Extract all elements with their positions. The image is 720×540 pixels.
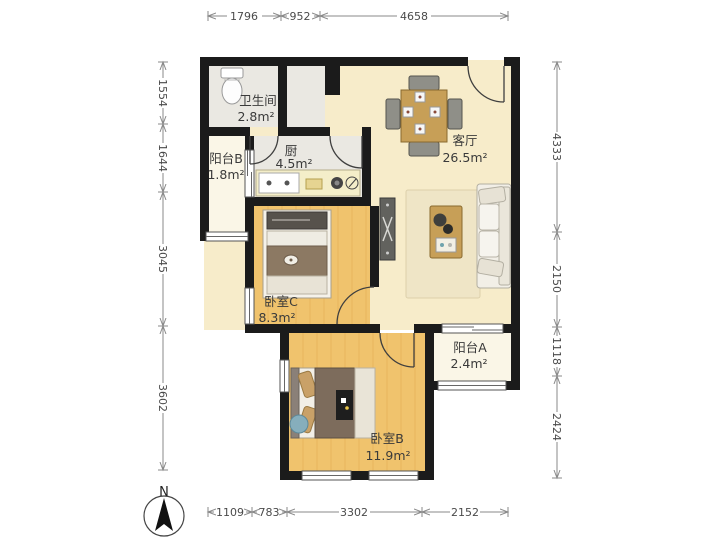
window-bedroom-b-bottom-1 [302,471,351,480]
tv-cabinet [380,198,395,260]
bed-single [263,210,331,298]
dim-left-label-1: 1644 [156,144,169,172]
bedroom-c-label: 卧室C [264,294,298,309]
dimension-left: 1554 1644 3045 3602 [156,62,169,470]
window-balcony-b [206,232,248,241]
dim-top-label-1: 952 [290,10,311,23]
sofa-pillow [478,186,506,204]
sofa-cushion [479,204,499,230]
dimension-bottom: 1109 783 3302 2152 [208,506,508,519]
window-balcony-a-bottom [438,381,506,390]
living-room-area: 26.5m² [442,150,487,165]
chair-icon [448,99,462,129]
bathroom-label: 卫生间 [239,93,277,108]
window-bedroom-c [245,288,254,324]
bathroom-area: 2.8m² [237,109,274,124]
chair-icon [409,76,439,90]
window-bedroom-b-bottom-2 [369,471,418,480]
dim-top-label-2: 4658 [400,10,428,23]
coffee-table [430,206,462,258]
dim-left-label-2: 3045 [156,245,169,273]
dim-bottom-label-0: 1109 [216,506,244,519]
chair-icon [409,142,439,156]
sliding-door-balcony-a [442,324,503,333]
bedroom-b-label: 卧室B [370,431,404,446]
bedroom-c-area: 8.3m² [258,310,295,325]
dim-left-label-3: 3602 [156,384,169,412]
dim-right-label-3: 2424 [550,413,563,441]
kitchen-counter [256,170,360,196]
bed-tray-icon [336,390,353,420]
balcony-b-label: 阳台B [209,151,243,166]
dim-top-label-0: 1796 [230,10,258,23]
dim-right-label-1: 2150 [550,265,563,293]
floor-plan-drawing: 卫生间 2.8m² 阳台B 1.8m² 厨 4.5m² 客厅 26.5m² 卧室… [0,0,720,540]
living-room-label: 客厅 [452,133,477,148]
compass-icon: N [144,485,184,536]
chair-icon [386,99,400,129]
sofa [477,184,511,288]
sink-icon [259,173,299,193]
cutting-board-icon [306,179,322,189]
dim-bottom-label-3: 2152 [451,506,479,519]
bedroom-b-area: 11.9m² [365,448,410,463]
bed-double [290,368,375,438]
compass-north-label: N [159,485,169,500]
dim-right-label-0: 4333 [550,133,563,161]
dimension-right: 4333 2150 1118 2424 [550,62,563,478]
sofa-cushion [479,231,499,257]
balcony-a-label: 阳台A [453,340,487,355]
dim-bottom-label-2: 3302 [340,506,368,519]
dim-bottom-label-1: 783 [259,506,280,519]
window-bedroom-b-left [280,360,289,392]
round-mat-icon [290,415,308,433]
dim-left-label-0: 1554 [156,79,169,107]
floor-plan-page: 卫生间 2.8m² 阳台B 1.8m² 厨 4.5m² 客厅 26.5m² 卧室… [0,0,720,540]
balcony-a-area: 2.4m² [450,356,487,371]
dimension-top: 1796 952 4658 [208,10,508,23]
dim-right-label-2: 1118 [550,337,563,365]
kitchen-area: 4.5m² [275,156,312,171]
tray-icon [436,238,456,252]
balcony-b-area: 1.8m² [207,167,244,182]
